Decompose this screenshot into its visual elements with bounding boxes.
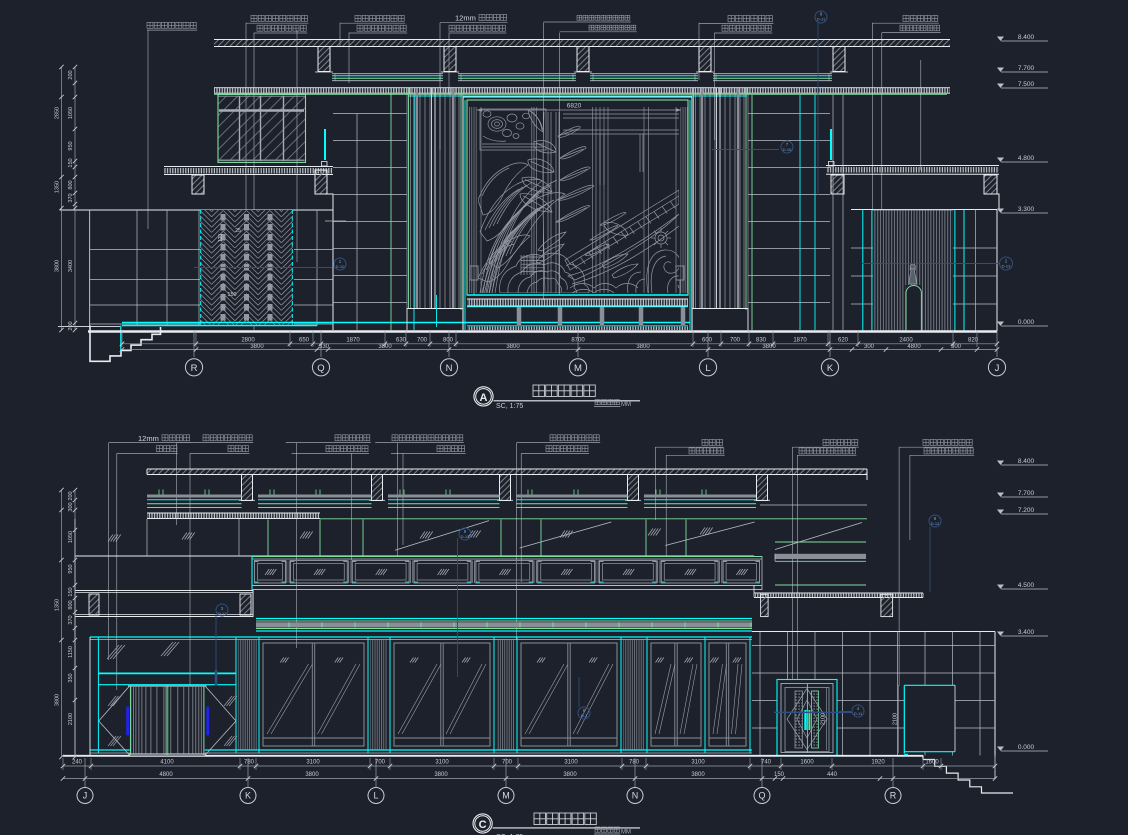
svg-text:12mm: 12mm xyxy=(138,434,159,443)
svg-text:700: 700 xyxy=(730,338,741,344)
svg-text:740: 740 xyxy=(761,760,772,766)
svg-text:2100: 2100 xyxy=(68,713,74,725)
svg-text:M: M xyxy=(574,363,582,374)
svg-text:780: 780 xyxy=(629,760,640,766)
svg-text:800: 800 xyxy=(68,180,74,189)
svg-text:C: C xyxy=(479,819,487,831)
svg-text:4100: 4100 xyxy=(160,760,174,766)
svg-text:0.000: 0.000 xyxy=(1018,744,1035,751)
svg-text:800: 800 xyxy=(68,600,74,609)
svg-text:700: 700 xyxy=(417,338,428,344)
svg-text:3800: 3800 xyxy=(506,344,520,350)
svg-text:3100: 3100 xyxy=(435,760,449,766)
svg-text:120: 120 xyxy=(218,234,224,243)
svg-text:1870: 1870 xyxy=(346,338,360,344)
svg-text:D-13: D-13 xyxy=(1002,264,1011,269)
svg-text:370: 370 xyxy=(68,615,74,624)
svg-text:3.300: 3.300 xyxy=(1018,206,1035,213)
svg-text:3800: 3800 xyxy=(250,344,264,350)
svg-text:L: L xyxy=(373,791,378,801)
svg-text:D-11: D-11 xyxy=(218,611,227,616)
svg-text:350: 350 xyxy=(68,673,74,682)
svg-text:3800: 3800 xyxy=(762,344,776,350)
svg-text:J: J xyxy=(995,363,1000,374)
svg-text:780: 780 xyxy=(244,760,255,766)
svg-text:3800: 3800 xyxy=(691,772,705,778)
svg-text:R: R xyxy=(890,791,897,801)
svg-text:830: 830 xyxy=(756,338,767,344)
svg-text:3800: 3800 xyxy=(55,260,61,272)
svg-text:1150: 1150 xyxy=(68,646,74,658)
svg-text:K: K xyxy=(245,791,251,801)
svg-text:150: 150 xyxy=(68,587,74,596)
svg-text:370: 370 xyxy=(68,193,74,202)
svg-text:1350: 1350 xyxy=(55,599,61,611)
svg-text:950: 950 xyxy=(68,141,74,150)
svg-text:D-12: D-12 xyxy=(931,521,940,526)
svg-text:1050: 1050 xyxy=(68,107,74,119)
svg-text:820: 820 xyxy=(968,338,979,344)
svg-text:330: 330 xyxy=(319,344,330,350)
svg-text:6820: 6820 xyxy=(567,103,582,110)
svg-text:1350: 1350 xyxy=(55,181,61,193)
svg-text:300: 300 xyxy=(951,344,962,350)
svg-text:630: 630 xyxy=(396,338,407,344)
svg-text:2100: 2100 xyxy=(821,713,827,725)
svg-text:3800: 3800 xyxy=(378,344,392,350)
svg-text:3800: 3800 xyxy=(434,772,448,778)
svg-text:1050: 1050 xyxy=(68,531,74,543)
svg-text:200: 200 xyxy=(68,321,74,330)
svg-text:2850: 2850 xyxy=(55,107,61,119)
svg-text:2400: 2400 xyxy=(899,338,913,344)
svg-text:8700: 8700 xyxy=(571,338,585,344)
svg-text:M: M xyxy=(502,791,510,801)
svg-text:D-12: D-12 xyxy=(461,534,470,539)
svg-text:3800: 3800 xyxy=(55,694,61,706)
svg-text:J: J xyxy=(83,791,88,801)
svg-text:2800: 2800 xyxy=(241,338,255,344)
svg-text:200: 200 xyxy=(68,491,74,500)
svg-text:12mm: 12mm xyxy=(455,14,476,23)
svg-text:7.700: 7.700 xyxy=(1018,65,1035,72)
svg-text:25: 25 xyxy=(235,228,241,234)
svg-text:150: 150 xyxy=(68,158,74,167)
svg-text:650: 650 xyxy=(299,338,310,344)
svg-text:3100: 3100 xyxy=(306,760,320,766)
svg-text:L: L xyxy=(705,363,710,374)
svg-text:600: 600 xyxy=(702,338,713,344)
svg-text:D-10: D-10 xyxy=(336,264,345,269)
svg-text:MM: MM xyxy=(621,830,631,835)
svg-text:240: 240 xyxy=(72,760,83,766)
svg-text:3800: 3800 xyxy=(305,772,319,778)
svg-text:7.700: 7.700 xyxy=(1018,490,1035,497)
svg-text:0.000: 0.000 xyxy=(1018,319,1035,326)
svg-text:2100: 2100 xyxy=(892,713,898,725)
svg-text:D-16: D-16 xyxy=(783,147,792,152)
svg-text:8.400: 8.400 xyxy=(1018,34,1035,41)
svg-text:700: 700 xyxy=(375,760,386,766)
svg-text:150: 150 xyxy=(227,292,236,298)
svg-text:7.500: 7.500 xyxy=(1018,81,1035,88)
svg-text:N: N xyxy=(446,363,453,374)
svg-text:4.800: 4.800 xyxy=(1018,155,1035,162)
svg-text:3100: 3100 xyxy=(691,760,705,766)
svg-text:700: 700 xyxy=(502,760,513,766)
svg-text:950: 950 xyxy=(68,564,74,573)
svg-text:300: 300 xyxy=(864,344,875,350)
svg-text:R: R xyxy=(191,363,198,374)
svg-text:1870: 1870 xyxy=(793,338,807,344)
svg-text:Q: Q xyxy=(758,791,765,801)
svg-text:440: 440 xyxy=(827,772,838,778)
svg-text:200: 200 xyxy=(68,70,74,79)
svg-text:620: 620 xyxy=(838,338,849,344)
svg-text:D-1: D-1 xyxy=(581,713,588,718)
svg-text:800: 800 xyxy=(443,338,454,344)
svg-text:4800: 4800 xyxy=(159,772,173,778)
svg-text:3800: 3800 xyxy=(563,772,577,778)
svg-text:300: 300 xyxy=(68,502,74,511)
svg-text:1600: 1600 xyxy=(800,760,814,766)
svg-text:A: A xyxy=(480,392,488,404)
svg-text:N: N xyxy=(632,791,639,801)
svg-text:K: K xyxy=(827,363,834,374)
svg-text:3400: 3400 xyxy=(68,260,74,272)
svg-text:1920: 1920 xyxy=(871,760,885,766)
svg-text:1600: 1600 xyxy=(925,760,939,766)
svg-text:MM: MM xyxy=(621,402,631,408)
svg-text:4800: 4800 xyxy=(907,344,921,350)
svg-text:4.500: 4.500 xyxy=(1018,582,1035,589)
svg-text:SC, 1:75: SC, 1:75 xyxy=(496,403,523,410)
svg-text:D-11: D-11 xyxy=(817,17,826,22)
svg-text:7.200: 7.200 xyxy=(1018,507,1035,514)
svg-text:8.400: 8.400 xyxy=(1018,458,1035,465)
svg-text:Q: Q xyxy=(317,363,324,374)
svg-text:3800: 3800 xyxy=(636,344,650,350)
svg-text:3.400: 3.400 xyxy=(1018,629,1035,636)
svg-text:3100: 3100 xyxy=(564,760,578,766)
svg-text:150: 150 xyxy=(774,772,785,778)
svg-text:D-11: D-11 xyxy=(854,711,863,716)
